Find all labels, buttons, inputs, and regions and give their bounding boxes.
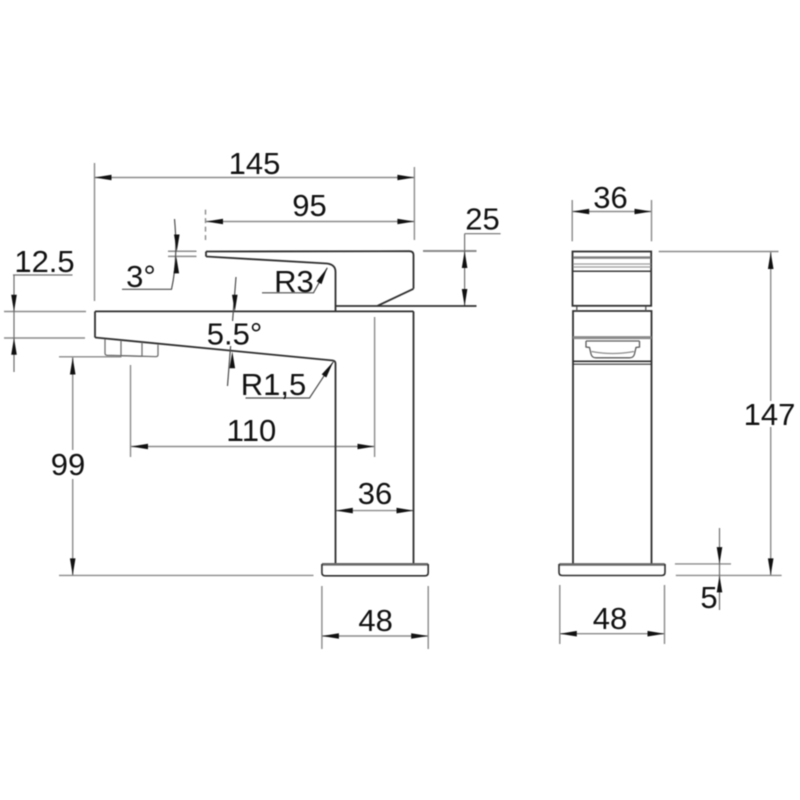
svg-text:5.5°: 5.5°	[207, 317, 263, 352]
svg-text:145: 145	[229, 146, 281, 181]
svg-text:3°: 3°	[126, 259, 156, 294]
svg-text:110: 110	[227, 413, 276, 448]
svg-text:95: 95	[292, 188, 326, 223]
svg-text:5: 5	[700, 580, 717, 615]
svg-text:R3: R3	[274, 264, 314, 299]
svg-text:99: 99	[51, 447, 85, 482]
svg-text:25: 25	[465, 202, 499, 237]
svg-text:36: 36	[358, 476, 392, 511]
svg-text:12.5: 12.5	[14, 244, 74, 279]
svg-text:48: 48	[358, 603, 392, 638]
svg-text:36: 36	[593, 180, 627, 215]
svg-text:48: 48	[593, 601, 627, 636]
svg-text:R1,5: R1,5	[241, 367, 306, 402]
svg-text:147: 147	[744, 397, 796, 432]
